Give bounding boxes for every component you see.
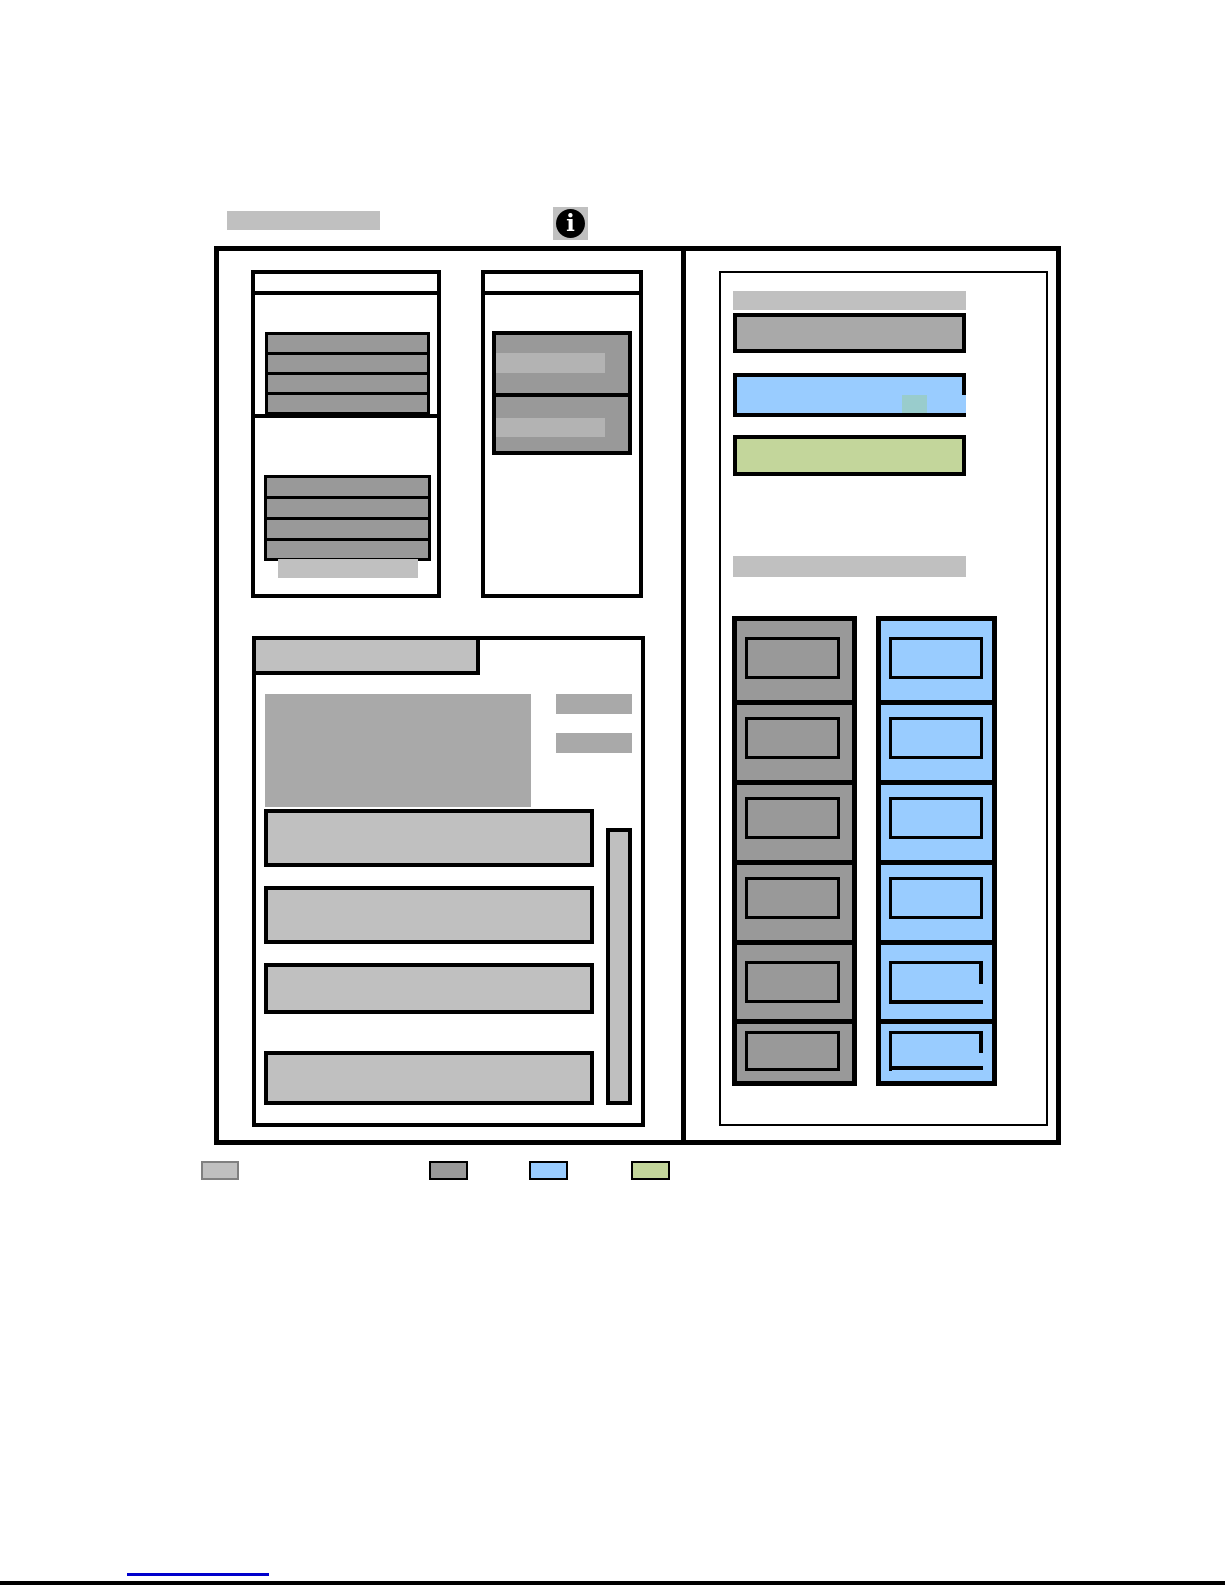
slot-label-box-open bbox=[889, 961, 983, 1003]
slot-list-header-bar bbox=[733, 556, 966, 577]
message-row bbox=[264, 809, 594, 867]
settings-green-bar bbox=[733, 435, 966, 476]
slot-cell-divider bbox=[737, 780, 852, 785]
caption-placeholder-bar bbox=[227, 211, 380, 230]
display-header-rule bbox=[251, 291, 441, 295]
status-line bbox=[265, 392, 430, 415]
slot-cell-divider bbox=[737, 700, 852, 705]
message-tab bbox=[252, 636, 480, 675]
status-line bbox=[264, 538, 431, 561]
legend-swatch-darkgray bbox=[429, 1161, 468, 1180]
slot-cell-divider bbox=[881, 700, 992, 705]
selection-highlight bbox=[902, 395, 927, 413]
settings-gray-button bbox=[733, 313, 966, 353]
message-meta-bar bbox=[556, 733, 632, 753]
slot-label-box bbox=[745, 797, 840, 839]
message-meta-bar bbox=[556, 694, 632, 714]
slot-cell-divider bbox=[737, 1019, 852, 1024]
open-box-right-segment bbox=[979, 1034, 983, 1053]
settings-header-bar bbox=[733, 291, 966, 310]
legend-swatch-blue bbox=[529, 1161, 568, 1180]
message-row bbox=[264, 1051, 594, 1105]
button-label-bar bbox=[496, 353, 605, 373]
message-body-block bbox=[265, 694, 531, 807]
slot-cell-divider bbox=[881, 940, 992, 945]
slot-label-box bbox=[745, 877, 840, 919]
open-box-right-segment bbox=[979, 964, 983, 984]
slot-label-box bbox=[745, 961, 840, 1003]
control-header-rule bbox=[481, 291, 643, 295]
info-icon-badge: i bbox=[553, 207, 588, 240]
slot-label-box bbox=[745, 717, 840, 759]
page-bottom-rule bbox=[0, 1581, 1225, 1585]
slot-label-box bbox=[745, 637, 840, 679]
display-section-divider bbox=[251, 414, 441, 418]
open-box-bottom-line bbox=[889, 1066, 983, 1070]
open-box-bottom-line bbox=[889, 1000, 983, 1004]
message-row bbox=[264, 963, 594, 1014]
slot-column-blue bbox=[876, 616, 997, 1086]
footer-link-underline[interactable] bbox=[127, 1573, 269, 1576]
slot-label-box bbox=[889, 797, 983, 839]
info-icon: i bbox=[556, 209, 585, 238]
figure-divider bbox=[681, 246, 686, 1145]
slot-cell-divider bbox=[737, 940, 852, 945]
info-icon-glyph: i bbox=[566, 212, 575, 235]
slot-label-box bbox=[889, 717, 983, 759]
message-row bbox=[264, 886, 594, 944]
slot-label-box-open bbox=[889, 1031, 983, 1071]
button-label-bar bbox=[496, 418, 605, 437]
message-scrollbar bbox=[606, 828, 632, 1105]
slot-cell-divider bbox=[737, 860, 852, 865]
slot-label-box bbox=[745, 1031, 840, 1071]
legend-swatch-green bbox=[631, 1161, 670, 1180]
slot-cell-divider bbox=[881, 860, 992, 865]
slot-cell-divider bbox=[881, 1019, 992, 1024]
slot-cell-divider bbox=[881, 780, 992, 785]
status-footnote-bar bbox=[278, 559, 418, 578]
slot-column-gray bbox=[732, 616, 857, 1086]
legend-swatch-lightgray bbox=[201, 1161, 239, 1180]
slot-label-box bbox=[889, 637, 983, 679]
document-page: i bbox=[0, 0, 1225, 1585]
settings-blue-bar-right-border-segment bbox=[962, 373, 966, 395]
settings-blue-bar bbox=[733, 373, 966, 417]
slot-label-box bbox=[889, 877, 983, 919]
button-block-divider bbox=[492, 393, 632, 397]
